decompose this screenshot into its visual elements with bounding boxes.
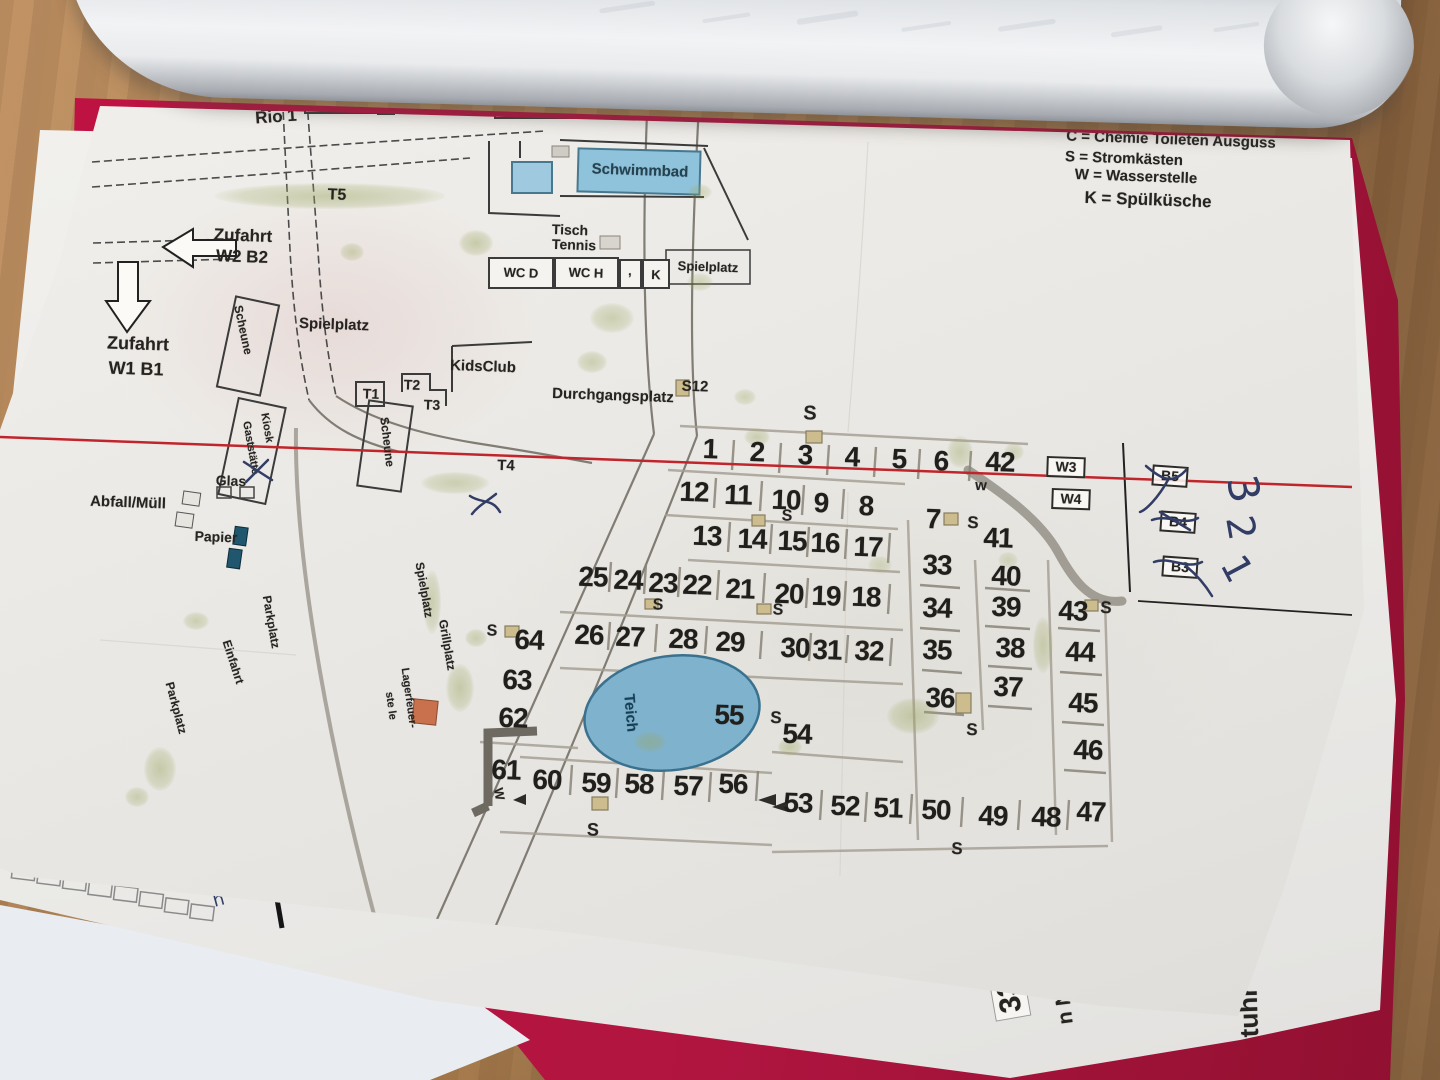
pitch-26: 26: [574, 620, 604, 650]
handwritten-2: 2: [1218, 513, 1261, 544]
tree-blob: [868, 556, 892, 574]
pitch-6: 6: [933, 446, 949, 476]
pitch-16: 16: [810, 528, 840, 558]
x-mark-road: [470, 494, 500, 514]
zufahrt-arrows: [106, 229, 236, 332]
strike-b3: [1154, 560, 1212, 596]
tree-blob: [465, 629, 487, 647]
pitch-15: 15: [777, 526, 807, 556]
label-glas: Glas: [216, 473, 247, 489]
pitch-23: 23: [648, 568, 678, 598]
tree-blob: [144, 747, 176, 791]
pitch-7: 7: [925, 504, 941, 534]
showthrough-text: [1213, 22, 1259, 33]
tree-blob: [446, 664, 474, 712]
tree-blob: [1033, 617, 1053, 673]
label-wcd: WC D: [503, 266, 538, 281]
label-w3: W3: [1046, 456, 1086, 478]
red-rule-line: [0, 437, 1352, 487]
strom-mark-8: S: [770, 709, 782, 727]
tree-blob: [688, 184, 712, 200]
pitch-13: 13: [692, 521, 722, 551]
pitch-55: 55: [714, 700, 744, 730]
pitch-56: 56: [718, 769, 748, 799]
arrow-down-w1b1: [106, 262, 150, 332]
pitch-25: 25: [578, 562, 608, 592]
label-w-61: W: [491, 787, 507, 801]
pitch-14: 14: [737, 524, 767, 554]
label-spielplatz-left: Spielplatz: [299, 316, 370, 334]
pitch-50: 50: [921, 795, 951, 825]
pitch-2: 2: [749, 437, 765, 467]
label-spielplatz-vert: Spielplatz: [413, 561, 435, 618]
pond-teich: [577, 644, 767, 781]
pitch-31: 31: [812, 635, 842, 665]
tree-blob: [215, 183, 445, 209]
pitch-20: 20: [774, 579, 804, 609]
label-b4: B4: [1159, 510, 1196, 533]
strike-b4: [1152, 512, 1198, 530]
pitch-44: 44: [1065, 637, 1095, 667]
strom-mark-10: S: [587, 820, 600, 839]
kidsclub-building: [452, 342, 532, 392]
showthrough-text: [702, 12, 750, 23]
tree-blob: [590, 303, 634, 333]
label-b5: B5: [1151, 464, 1188, 487]
buildings: [217, 82, 1352, 615]
tree-blob: [778, 738, 802, 756]
pitch-39: 39: [991, 592, 1021, 622]
pitch-8: 8: [858, 491, 874, 521]
kids-pool: [512, 162, 552, 193]
label-w4: W4: [1051, 488, 1091, 510]
tree-blob: [734, 389, 756, 405]
label-w2b2: W2 B2: [216, 247, 269, 267]
pitch-10: 10: [771, 485, 801, 515]
paper-creases: [100, 142, 868, 876]
pitch-43: 43: [1058, 596, 1088, 626]
pitch-59: 59: [581, 768, 611, 798]
pitch-22: 22: [682, 570, 712, 600]
tree-blob: [183, 612, 209, 630]
wch-building: [555, 258, 618, 288]
pitch-60: 60: [532, 765, 562, 795]
scheune-building-1: [217, 296, 279, 395]
pitch-3: 3: [797, 440, 813, 470]
pitch-46: 46: [1073, 735, 1103, 765]
pitch-37: 37: [993, 672, 1023, 702]
label-tennis: Tennis: [552, 237, 597, 253]
field-boundary: [296, 428, 392, 980]
label-grillplatz: Grillplatz: [436, 619, 457, 672]
strom-mark-2: S: [781, 508, 792, 525]
strom-boxes: [505, 380, 1098, 810]
kiosk-gaststaette-building: [218, 398, 285, 504]
photo-of-campground-map: { "colors":{ "paper":"#edebe7","cover_re…: [0, 0, 1440, 1080]
pitch-24: 24: [613, 565, 643, 595]
tree-blob: [423, 570, 441, 634]
pitch-30: 30: [780, 633, 810, 663]
label-einfahrt: Einfahrt: [220, 638, 246, 685]
pitch-row-lines: [480, 426, 1112, 852]
t2-t3-building: [402, 374, 446, 406]
strom-mark-7: S: [486, 623, 497, 640]
pen-marks: [244, 460, 1212, 596]
label-zufahrt-w1: Zufahrt: [107, 333, 170, 354]
label-gaststaette: Gaststätte: [240, 421, 261, 476]
showthrough-text: [1111, 25, 1163, 38]
pitch-57: 57: [673, 771, 703, 801]
pitch-63: 63: [502, 665, 532, 695]
k-building: [643, 260, 669, 288]
black-tick-mark: [277, 899, 282, 928]
street-sketch-lines: [92, 88, 545, 400]
scheune-building-2: [357, 400, 413, 491]
small-arrow-marks: [513, 794, 788, 812]
pitch-34: 34: [922, 593, 952, 623]
swimming-pool: [577, 148, 700, 194]
strike-b5: [1140, 466, 1186, 512]
papier-containers: [227, 526, 249, 569]
pitch-47: 47: [1076, 797, 1106, 827]
pitch-61: 61: [491, 755, 521, 785]
strom-mark-3: S: [967, 514, 979, 532]
tree-blob: [1004, 443, 1024, 461]
pitch-33: 33: [922, 550, 952, 580]
label-spielplatz-top: Spielplatz: [677, 259, 738, 275]
handwritten-1: 1: [1213, 549, 1260, 589]
label-s12: S12: [681, 379, 708, 396]
pitch-53: 53: [783, 788, 813, 818]
label-durchgangsplatz: Durchgangsplatz: [552, 386, 674, 406]
tree-blob: [421, 472, 489, 494]
pitch-38: 38: [995, 633, 1025, 663]
pitch-9: 9: [813, 488, 829, 518]
legend-line-k: K = Spülküsche: [1084, 189, 1212, 211]
showthrough-text: [796, 10, 858, 25]
spielplatz-box: [666, 250, 750, 284]
handwritten-3: 3: [1219, 471, 1268, 506]
label-lagerfeuer-1: Lagerfeuer-: [398, 667, 418, 729]
pitch-4: 4: [844, 442, 860, 472]
tree-blob: [577, 351, 607, 373]
pitch-35: 35: [922, 635, 952, 665]
pitch-58: 58: [624, 769, 654, 799]
pool-shed: [552, 146, 569, 157]
strom-mark-6: S: [1100, 599, 1112, 617]
tree-blob: [887, 698, 939, 734]
tree-blob: [634, 732, 666, 752]
tree-blob: [998, 552, 1018, 568]
pitch-64: 64: [514, 625, 544, 655]
strom-mark-4: S: [652, 597, 663, 614]
pitch-dividers: [570, 440, 1106, 830]
pitch-29: 29: [715, 627, 745, 657]
tree-blob: [459, 230, 493, 256]
pitch-18: 18: [851, 582, 881, 612]
label-scheune-2: Scheune: [378, 416, 397, 467]
camp-roads: [309, 86, 700, 944]
wcd-building: [489, 258, 553, 288]
pitch-1: 1: [702, 434, 718, 464]
muell-containers: [175, 491, 201, 528]
arrow-left-w2b2: [163, 229, 236, 267]
pitch-21: 21: [725, 574, 755, 604]
gravel-path: [968, 470, 1122, 601]
pitch-27: 27: [615, 622, 645, 652]
pitch-62: 62: [498, 703, 528, 733]
pitch-48: 48: [1031, 802, 1061, 832]
tischtennis-table: [600, 236, 620, 249]
label-parkplatz-2: Parkplatz: [163, 681, 189, 736]
label-t2: T2: [404, 377, 421, 392]
pitch-17: 17: [853, 532, 883, 562]
pitch-52: 52: [830, 791, 860, 821]
tree-blob: [744, 428, 770, 446]
pitch-42: 42: [985, 447, 1015, 477]
label-comma-box: ,: [628, 264, 632, 278]
tree-blob: [125, 787, 149, 807]
pitch-54: 54: [782, 719, 812, 749]
pitch-11: 11: [724, 480, 753, 510]
label-t4: T4: [497, 458, 515, 474]
pitch-51: 51: [873, 793, 903, 823]
glas-containers: [217, 487, 254, 498]
label-parkplatz-1: Parkplatz: [260, 595, 282, 650]
label-scheune-1: Scheune: [232, 304, 255, 356]
pitch-45: 45: [1068, 688, 1098, 718]
pitch-5: 5: [891, 444, 907, 474]
label-lagerfeuer-2: ste le: [382, 691, 397, 720]
tree-blob: [687, 273, 713, 291]
tree-blob: [947, 436, 973, 468]
showthrough-text: [599, 0, 655, 13]
label-teich: Teich: [620, 693, 639, 732]
strom-mark-11: S: [951, 840, 963, 858]
label-k-box: K: [651, 268, 661, 282]
legend-line-w: W = Wasserstelle: [1075, 167, 1198, 187]
showthrough-text: [998, 19, 1056, 32]
t1-building: [356, 382, 384, 406]
pitch-40: 40: [991, 561, 1021, 591]
label-tisch: Tisch: [552, 222, 589, 238]
label-papier: Papier: [194, 529, 237, 545]
wall-corner-61: [473, 731, 537, 813]
label-wch: WC H: [568, 266, 603, 281]
pitch-32: 32: [854, 636, 884, 666]
label-t1: T1: [363, 386, 380, 401]
strom-mark-1: S: [803, 403, 817, 424]
pitch-28: 28: [668, 624, 698, 654]
label-kidsclub: KidsClub: [450, 358, 516, 376]
pitch-49: 49: [978, 801, 1008, 831]
label-kiosk: Kiosk: [258, 412, 275, 444]
label-t3: T3: [424, 397, 441, 412]
tree-blob: [340, 243, 364, 261]
strom-mark-5: S: [772, 602, 783, 619]
pitch-19: 19: [811, 581, 841, 611]
showthrough-text: [901, 21, 951, 32]
pitch-36: 36: [925, 683, 955, 713]
pitch-41: 41: [983, 523, 1013, 553]
label-zufahrt-w2: Zufahrt: [213, 226, 272, 246]
label-b3: B3: [1161, 555, 1198, 578]
pitch-12: 12: [679, 477, 709, 507]
label-schwimmbad: Schwimmbad: [591, 161, 688, 180]
label-w1b1: W1 B1: [108, 359, 164, 380]
label-abfall-muell: Abfall/Müll: [90, 494, 166, 512]
legend-line-s: S = Stromkästen: [1065, 149, 1183, 169]
label-w-lowercase: w: [975, 478, 987, 494]
x-mark-glas: [244, 460, 272, 482]
strom-mark-9: S: [966, 721, 978, 739]
lagerfeuer-spot: [412, 699, 438, 725]
label-t5: T5: [327, 187, 346, 204]
